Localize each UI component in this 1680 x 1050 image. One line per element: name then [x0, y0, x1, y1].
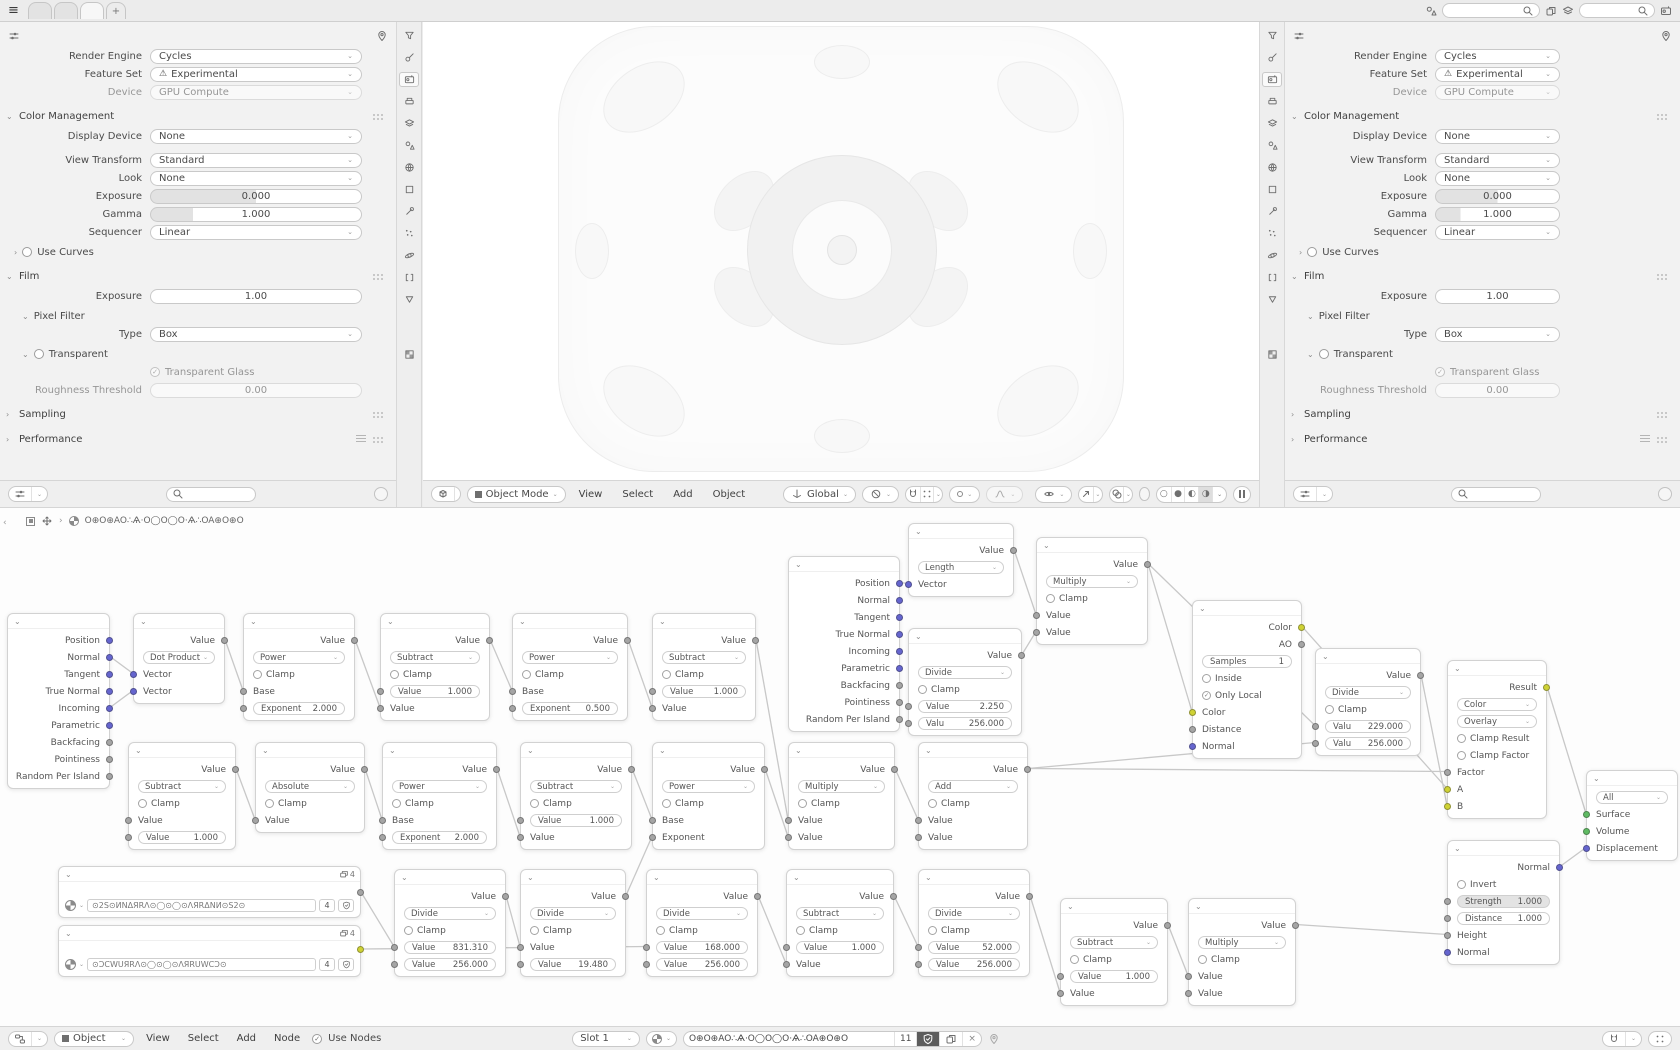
input-socket[interactable]	[1057, 973, 1064, 980]
subsection-transparent[interactable]: ⌄Transparent	[22, 346, 396, 362]
input-socket[interactable]	[377, 705, 384, 712]
section-performance[interactable]: ›Performance	[6, 431, 396, 448]
input-socket[interactable]	[649, 834, 656, 841]
operation-select[interactable]: Subtract⌄	[662, 651, 746, 664]
operation-select[interactable]: Length⌄	[918, 561, 1004, 574]
operation-select[interactable]: Multiply⌄	[798, 780, 885, 793]
input-socket[interactable]	[1185, 973, 1192, 980]
node-geo1[interactable]: ⌄PositionNormalTangentTrue NormalIncomin…	[7, 613, 110, 789]
operation-select[interactable]: Multiply⌄	[1046, 575, 1138, 588]
value-value-field[interactable]: Value52.000	[928, 941, 1020, 954]
collapse-chevron-icon[interactable]: ⌄	[795, 560, 802, 569]
add-workspace-button[interactable]: +	[106, 2, 126, 19]
menu-view[interactable]: View	[146, 1033, 170, 1044]
props-tab-render[interactable]	[1262, 72, 1282, 87]
checkbox[interactable]	[1319, 349, 1329, 359]
output-socket[interactable]	[106, 773, 113, 780]
output-socket[interactable]	[106, 637, 113, 644]
filter-icon[interactable]	[399, 28, 419, 43]
input-socket[interactable]	[240, 688, 247, 695]
collapse-chevron-icon[interactable]: ⌄	[793, 873, 800, 882]
operation-select[interactable]: Subtract⌄	[796, 907, 884, 920]
node-header[interactable]: ⌄	[1193, 601, 1301, 616]
exposure-slider[interactable]: 0.000	[1435, 189, 1560, 204]
node-divt[interactable]: ⌄ValueDivide⌄ClampValue2.250Valu256.000	[908, 628, 1022, 736]
node-header[interactable]: ⌄	[1448, 661, 1546, 676]
node-header[interactable]: ⌄	[787, 870, 893, 885]
node-header[interactable]: ⌄	[909, 629, 1021, 644]
workspace-tab-2[interactable]	[54, 2, 78, 19]
menu-select[interactable]: Select	[622, 489, 653, 500]
pin-icon[interactable]	[376, 30, 388, 42]
node-divB1[interactable]: ⌄ValueDivide⌄ClampValue831.310Value256.0…	[394, 869, 506, 977]
datablock-user-count[interactable]: 4	[319, 899, 335, 912]
props-tab-world[interactable]	[1262, 160, 1282, 175]
output-socket[interactable]	[891, 766, 898, 773]
subsection-pixel-filter[interactable]: ⌄Pixel Filter	[1307, 308, 1680, 324]
node-pow3[interactable]: ⌄ValuePower⌄ClampBaseExponent2.000	[382, 742, 497, 850]
node-header[interactable]: ⌄4	[59, 926, 360, 941]
view-layer-selector[interactable]	[1579, 3, 1655, 18]
operation-select[interactable]: Dot Product⌄	[143, 651, 215, 664]
output-socket[interactable]	[1018, 652, 1025, 659]
pin-icon[interactable]	[1660, 30, 1672, 42]
input-socket[interactable]	[125, 817, 132, 824]
shading-wireframe-button[interactable]: ○	[1157, 486, 1171, 503]
overlay-toggle[interactable]	[1648, 1031, 1672, 1047]
collapse-chevron-icon[interactable]: ⌄	[1454, 664, 1461, 673]
value-value-field[interactable]: Value19.480	[530, 958, 616, 971]
node-header[interactable]: ⌄	[395, 870, 505, 885]
output-socket[interactable]	[896, 665, 903, 672]
input-socket[interactable]	[1583, 811, 1590, 818]
drag-grip-icon[interactable]	[372, 113, 384, 121]
collapse-chevron-icon[interactable]: ⌄	[389, 746, 396, 755]
view-transform-select[interactable]: Standard⌄	[150, 153, 362, 168]
operation-select[interactable]: Divide⌄	[530, 907, 616, 920]
render-engine-select[interactable]: Cycles⌄	[150, 49, 362, 64]
input-socket[interactable]	[1583, 828, 1590, 835]
input-socket[interactable]	[1444, 915, 1451, 922]
input-socket[interactable]	[252, 817, 259, 824]
value-value-field[interactable]: Value1.000	[1070, 970, 1158, 983]
output-socket[interactable]	[106, 654, 113, 661]
node-header[interactable]: ⌄	[647, 870, 757, 885]
valu-value-field[interactable]: Valu256.000	[1325, 737, 1411, 750]
operation-select[interactable]: Divide⌄	[928, 907, 1020, 920]
value-value-field[interactable]: Value1.000	[138, 831, 226, 844]
checkbox[interactable]: ✓	[150, 367, 160, 377]
output-socket[interactable]	[1292, 922, 1299, 929]
value-value-field[interactable]: Value256.000	[656, 958, 748, 971]
input-socket[interactable]	[1033, 629, 1040, 636]
section-sampling[interactable]: ›Sampling	[1291, 406, 1680, 423]
collapse-chevron-icon[interactable]: ⌄	[14, 617, 21, 626]
checkbox[interactable]	[798, 799, 807, 808]
value-value-field[interactable]: Value1.000	[390, 685, 480, 698]
proportional-edit-toggle[interactable]: ⌄	[949, 486, 980, 503]
checkbox[interactable]: ✓	[1435, 367, 1445, 377]
input-socket[interactable]	[1312, 723, 1319, 730]
input-socket[interactable]	[1189, 709, 1196, 716]
node-div229[interactable]: ⌄ValueDivide⌄ClampValu229.000Valu256.000	[1315, 648, 1421, 756]
collapse-chevron-icon[interactable]: ⌄	[140, 617, 147, 626]
checkbox[interactable]	[34, 349, 44, 359]
checkbox[interactable]	[265, 799, 274, 808]
section-color-management[interactable]: ⌄Color Management	[6, 108, 396, 125]
device-select[interactable]: GPU Compute⌄	[1435, 85, 1560, 100]
input-socket[interactable]	[1444, 786, 1451, 793]
input-socket[interactable]	[915, 817, 922, 824]
input-socket[interactable]	[1444, 769, 1451, 776]
snapping-group[interactable]: ⌄	[1602, 1031, 1642, 1047]
node-dot1[interactable]: ⌄ValueDot Product⌄VectorVector	[133, 613, 225, 704]
look-select[interactable]: None⌄	[150, 171, 362, 186]
use-nodes-checkbox[interactable]: ✓	[312, 1034, 322, 1044]
input-socket[interactable]	[517, 834, 524, 841]
unlink-material-button[interactable]: ×	[962, 1031, 981, 1047]
input-socket[interactable]	[517, 961, 524, 968]
operation-select[interactable]: Subtract⌄	[390, 651, 480, 664]
props-tab-texture[interactable]	[1262, 347, 1282, 362]
operation-select[interactable]: Power⌄	[392, 780, 487, 793]
node-header[interactable]: ⌄	[1189, 899, 1295, 914]
output-socket[interactable]	[896, 648, 903, 655]
node-mul1[interactable]: ⌄ValueMultiply⌄ClampValueValue	[788, 742, 895, 850]
props-tab-scene[interactable]	[399, 138, 419, 153]
overlays-dropdown[interactable]: ⌄	[1109, 486, 1134, 503]
node-header[interactable]: ⌄	[1061, 899, 1167, 914]
output-socket[interactable]	[752, 637, 759, 644]
operation-select[interactable]: Divide⌄	[404, 907, 496, 920]
collapse-chevron-icon[interactable]: ⌄	[915, 632, 922, 641]
falloff-select[interactable]: ⌄	[986, 486, 1023, 503]
samples-value-field[interactable]: Samples1	[1202, 655, 1292, 668]
node-header[interactable]: ⌄	[1316, 649, 1420, 664]
input-socket[interactable]	[649, 705, 656, 712]
node-sub2[interactable]: ⌄ValueSubtract⌄ClampValue1.000Value	[652, 613, 756, 721]
node-header[interactable]: ⌄	[383, 743, 496, 758]
panel-collapse-icon[interactable]: ‹	[3, 518, 7, 528]
menu-object[interactable]: Object	[713, 489, 746, 500]
props-tab-render[interactable]	[399, 72, 419, 87]
new-scene-icon[interactable]	[1545, 5, 1557, 17]
output-socket[interactable]	[106, 722, 113, 729]
collapse-chevron-icon[interactable]: ⌄	[1454, 844, 1461, 853]
input-socket[interactable]	[1583, 845, 1590, 852]
collapse-chevron-icon[interactable]: ⌄	[135, 746, 142, 755]
pin-icon[interactable]	[988, 1033, 1000, 1045]
image-datablock-icon[interactable]	[65, 900, 76, 911]
fake-user-shield-icon[interactable]	[916, 1031, 939, 1047]
collapse-chevron-icon[interactable]: ⌄	[527, 746, 534, 755]
output-socket[interactable]	[896, 699, 903, 706]
output-socket[interactable]	[1556, 864, 1563, 871]
section-performance[interactable]: ›Performance	[1291, 431, 1680, 448]
input-socket[interactable]	[1444, 949, 1451, 956]
checkbox[interactable]	[1198, 955, 1207, 964]
node-header[interactable]: ⌄	[1037, 538, 1147, 553]
menu-add[interactable]: Add	[237, 1033, 256, 1044]
node-bump1[interactable]: ⌄NormalInvertStrength1.000Distance1.000H…	[1447, 840, 1560, 965]
node-sub3[interactable]: ⌄ValueSubtract⌄ClampValueValue1.000	[128, 742, 236, 850]
input-socket[interactable]	[915, 834, 922, 841]
menu-select[interactable]: Select	[188, 1033, 219, 1044]
node-mix1[interactable]: ⌄ResultColor⌄Overlay⌄Clamp ResultClamp F…	[1447, 660, 1547, 819]
output-socket[interactable]	[106, 705, 113, 712]
node-header[interactable]: ⌄	[8, 614, 109, 629]
menu-add[interactable]: Add	[673, 489, 692, 500]
node-header[interactable]: ⌄4	[59, 867, 360, 882]
input-socket[interactable]	[391, 944, 398, 951]
input-socket[interactable]	[785, 817, 792, 824]
node-header[interactable]: ⌄	[653, 743, 764, 758]
operation-select[interactable]: Divide⌄	[1325, 686, 1411, 699]
input-socket[interactable]	[391, 961, 398, 968]
node-header[interactable]: ⌄	[129, 743, 235, 758]
filter-icon[interactable]	[1262, 28, 1282, 43]
drag-grip-icon[interactable]	[1656, 411, 1668, 419]
datablock-name-field[interactable]: ⊙ƆCWUЯRΛ⊙◯⊙◯⊙ΛЯRUWCƆ⊙	[87, 958, 316, 971]
shader-type-select[interactable]: Object ⌄	[54, 1031, 134, 1047]
drag-grip-icon[interactable]	[372, 436, 384, 444]
checkbox[interactable]	[1325, 705, 1334, 714]
output-socket[interactable]	[761, 766, 768, 773]
input-socket[interactable]	[785, 834, 792, 841]
checkbox[interactable]	[390, 670, 399, 679]
output-socket[interactable]	[1026, 893, 1033, 900]
gamma-slider[interactable]: 1.000	[1435, 207, 1560, 222]
node-out1[interactable]: ⌄All⌄SurfaceVolumeDisplacement	[1586, 770, 1678, 861]
output-socket[interactable]	[896, 631, 903, 638]
checkbox[interactable]	[1046, 594, 1055, 603]
props-tab-constraints[interactable]	[1262, 270, 1282, 285]
collapse-chevron-icon[interactable]: ⌄	[659, 746, 666, 755]
collapse-chevron-icon[interactable]: ⌄	[1199, 604, 1206, 613]
checkbox[interactable]	[662, 670, 671, 679]
roughness-threshold-field[interactable]: 0.00	[1435, 383, 1560, 398]
props-tab-scene[interactable]	[1262, 138, 1282, 153]
node-divB3[interactable]: ⌄ValueDivide⌄ClampValue168.000Value256.0…	[646, 869, 758, 977]
render-image-icon[interactable]	[1660, 5, 1672, 17]
collapse-chevron-icon[interactable]: ⌄	[401, 873, 408, 882]
properties-search-input[interactable]	[166, 487, 256, 502]
drag-grip-icon[interactable]	[1656, 273, 1668, 281]
node-divB4[interactable]: ⌄ValueDivide⌄ClampValue52.000Value256.00…	[918, 869, 1030, 977]
input-socket[interactable]	[649, 688, 656, 695]
input-socket[interactable]	[130, 671, 137, 678]
input-socket[interactable]	[1185, 990, 1192, 997]
operation-select[interactable]: Subtract⌄	[530, 780, 622, 793]
output-socket[interactable]	[622, 893, 629, 900]
snapping-group[interactable]: ⌄	[905, 486, 943, 503]
node-header[interactable]: ⌄	[789, 743, 894, 758]
checkbox[interactable]	[22, 247, 32, 257]
display-device-select[interactable]: None⌄	[150, 129, 362, 144]
node-header[interactable]: ⌄	[919, 743, 1027, 758]
copy-material-button[interactable]	[939, 1031, 962, 1047]
value-value-field[interactable]: Value256.000	[928, 958, 1020, 971]
type-select[interactable]: Box⌄	[1435, 327, 1560, 342]
collapse-chevron-icon[interactable]: ⌄	[1195, 902, 1202, 911]
collapse-chevron-icon[interactable]: ⌄	[915, 527, 922, 536]
collapse-chevron-icon[interactable]: ⌄	[65, 929, 72, 938]
props-tab-viewlayer[interactable]	[399, 116, 419, 131]
mode-select[interactable]: Object Mode ⌄	[467, 486, 566, 503]
props-tab-modifier[interactable]	[1262, 204, 1282, 219]
props-tab-object[interactable]	[1262, 182, 1282, 197]
node-sub4[interactable]: ⌄ValueSubtract⌄ClampValue1.000Value	[520, 742, 632, 850]
checkbox[interactable]	[138, 799, 147, 808]
output-socket[interactable]	[628, 766, 635, 773]
device-select[interactable]: GPU Compute⌄	[150, 85, 362, 100]
input-socket[interactable]	[377, 688, 384, 695]
fake-user-shield-button[interactable]	[338, 958, 354, 971]
output-socket[interactable]	[502, 893, 509, 900]
scene-selector[interactable]	[1442, 3, 1540, 18]
props-tab-data[interactable]	[1262, 292, 1282, 307]
checkbox[interactable]	[253, 670, 262, 679]
gamma-slider[interactable]: 1.000	[150, 207, 362, 222]
operation-select[interactable]: Subtract⌄	[1070, 936, 1158, 949]
subsection-use-curves[interactable]: ›Use Curves	[1299, 244, 1680, 260]
input-socket[interactable]	[1189, 743, 1196, 750]
operation-select[interactable]: Overlay⌄	[1457, 715, 1537, 728]
input-socket[interactable]	[517, 817, 524, 824]
operation-select[interactable]: Power⌄	[253, 651, 345, 664]
collapse-chevron-icon[interactable]: ⌄	[1322, 652, 1329, 661]
collapse-chevron-icon[interactable]: ⌄	[1067, 902, 1074, 911]
value-value-field[interactable]: Value256.000	[404, 958, 496, 971]
output-socket[interactable]	[221, 637, 228, 644]
node-geo2[interactable]: ⌄PositionNormalTangentTrue NormalIncomin…	[788, 556, 900, 732]
input-socket[interactable]	[905, 703, 912, 710]
input-socket[interactable]	[509, 705, 516, 712]
checkbox[interactable]	[404, 926, 413, 935]
input-socket[interactable]	[915, 944, 922, 951]
output-socket[interactable]	[1164, 922, 1171, 929]
drag-grip-icon[interactable]	[372, 273, 384, 281]
options-button[interactable]	[374, 487, 388, 501]
exposure-field[interactable]: 1.00	[1435, 289, 1560, 304]
node-pow4[interactable]: ⌄ValuePower⌄ClampBaseExponent	[652, 742, 765, 850]
props-tab-physics[interactable]	[399, 248, 419, 263]
menu-view[interactable]: View	[579, 489, 603, 500]
output-socket[interactable]	[357, 889, 364, 896]
node-pow1[interactable]: ⌄ValuePower⌄ClampBaseExponent2.000	[243, 613, 355, 721]
output-socket[interactable]	[1417, 672, 1424, 679]
exposure-slider[interactable]: 0.000	[150, 189, 362, 204]
subsection-use-curves[interactable]: ›Use Curves	[14, 244, 396, 260]
input-socket[interactable]	[905, 581, 912, 588]
props-tab-output[interactable]	[1262, 94, 1282, 109]
exponent-value-field[interactable]: Exponent0.500	[522, 702, 618, 715]
workspace-tab-3[interactable]	[80, 2, 104, 19]
shading-dropdown[interactable]: ⌄	[1212, 486, 1226, 503]
shading-rendered-button[interactable]: ◑	[1198, 486, 1212, 503]
input-socket[interactable]	[783, 944, 790, 951]
drag-grip-icon[interactable]	[1656, 113, 1668, 121]
input-socket[interactable]	[240, 705, 247, 712]
valu-value-field[interactable]: Valu229.000	[1325, 720, 1411, 733]
editor-type-button[interactable]: ⌄	[431, 486, 461, 502]
props-tab-output[interactable]	[399, 94, 419, 109]
value-value-field[interactable]: Value168.000	[656, 941, 748, 954]
props-tab-texture[interactable]	[399, 347, 419, 362]
material-user-count[interactable]: 11	[894, 1031, 916, 1047]
node-header[interactable]: ⌄	[653, 614, 755, 629]
collapse-chevron-icon[interactable]: ⌄	[795, 746, 802, 755]
operation-select[interactable]: Multiply⌄	[1198, 936, 1286, 949]
output-socket[interactable]	[896, 682, 903, 689]
value-value-field[interactable]: Value1.000	[530, 814, 622, 827]
operation-select[interactable]: Divide⌄	[656, 907, 748, 920]
output-socket[interactable]	[1024, 766, 1031, 773]
checkbox[interactable]	[918, 685, 927, 694]
menu-node[interactable]: Node	[274, 1033, 300, 1044]
exponent-value-field[interactable]: Exponent2.000	[253, 702, 345, 715]
display-device-select[interactable]: None⌄	[1435, 129, 1560, 144]
props-tab-object[interactable]	[399, 182, 419, 197]
type-select[interactable]: Box⌄	[150, 327, 362, 342]
collapse-chevron-icon[interactable]: ⌄	[925, 873, 932, 882]
output-socket[interactable]	[232, 766, 239, 773]
output-socket[interactable]	[486, 637, 493, 644]
collapse-chevron-icon[interactable]: ⌄	[387, 617, 394, 626]
editor-type-button[interactable]: ⌄	[1293, 486, 1333, 502]
output-socket[interactable]	[890, 893, 897, 900]
node-divB2[interactable]: ⌄ValueDivide⌄ClampValueValue19.480	[520, 869, 626, 977]
node-pow2[interactable]: ⌄ValuePower⌄ClampBaseExponent0.500	[512, 613, 628, 721]
props-tab-tool[interactable]	[1262, 50, 1282, 65]
section-sampling[interactable]: ›Sampling	[6, 406, 396, 423]
roughness-threshold-field[interactable]: 0.00	[150, 383, 362, 398]
input-socket[interactable]	[379, 817, 386, 824]
input-socket[interactable]	[1033, 612, 1040, 619]
node-add1[interactable]: ⌄ValueAdd⌄ClampValueValue	[918, 742, 1028, 850]
section-film[interactable]: ⌄Film	[1291, 268, 1680, 285]
node-sub6[interactable]: ⌄ValueSubtract⌄ClampValue1.000Value	[1060, 898, 1168, 1006]
output-socket[interactable]	[1298, 641, 1305, 648]
node-header[interactable]: ⌄	[256, 743, 364, 758]
checkbox[interactable]	[796, 926, 805, 935]
viewport-canvas[interactable]	[423, 22, 1259, 480]
input-socket[interactable]	[649, 817, 656, 824]
node-header[interactable]: ⌄	[521, 743, 631, 758]
input-socket[interactable]	[1189, 726, 1196, 733]
input-socket[interactable]	[783, 961, 790, 968]
valu-value-field[interactable]: Valu256.000	[918, 717, 1012, 730]
collapse-chevron-icon[interactable]: ⌄	[65, 870, 72, 879]
collapse-chevron-icon[interactable]: ⌄	[250, 617, 257, 626]
checkbox[interactable]	[1202, 674, 1211, 683]
collapse-chevron-icon[interactable]: ⌄	[519, 617, 526, 626]
input-socket[interactable]	[1312, 740, 1319, 747]
checkbox[interactable]	[1457, 880, 1466, 889]
value-value-field[interactable]: Value1.000	[662, 685, 746, 698]
options-button[interactable]	[1658, 487, 1672, 501]
editor-type-button[interactable]: ⌄	[8, 1031, 48, 1047]
shading-solid-button[interactable]: ●	[1171, 486, 1185, 503]
slot-select[interactable]: Slot 1 ⌄	[572, 1031, 640, 1047]
props-tab-particles[interactable]	[1262, 226, 1282, 241]
output-socket[interactable]	[106, 739, 113, 746]
pause-render-button[interactable]	[1233, 486, 1251, 503]
node-subB1[interactable]: ⌄ValueSubtract⌄ClampValue1.000Value	[786, 869, 894, 977]
output-socket[interactable]	[357, 946, 364, 953]
drag-grip-icon[interactable]	[1656, 436, 1668, 444]
props-tab-physics[interactable]	[1262, 248, 1282, 263]
